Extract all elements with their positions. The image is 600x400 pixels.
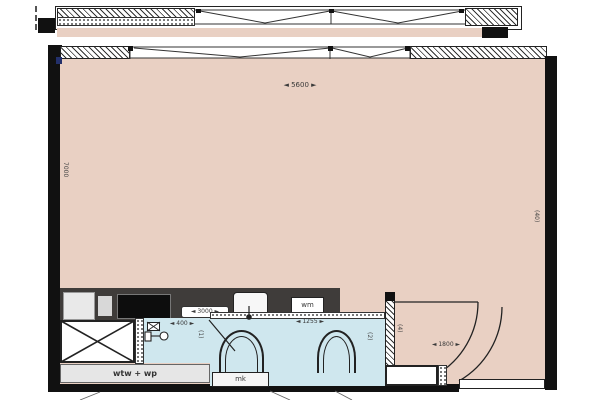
wall-left (48, 45, 60, 392)
cooktop (117, 294, 171, 319)
hall-area-tag: (4) (396, 324, 402, 333)
kitchen-panel (98, 296, 112, 316)
section-wall-block-left (38, 18, 55, 33)
room-area-tag: (40) (533, 210, 539, 222)
wall-top-hatch-left (60, 46, 130, 59)
bathroom-area-tag: (2) (366, 332, 372, 341)
hall-shaft-wall-stub (438, 365, 447, 386)
leader-lines (80, 391, 352, 400)
hall-shaft-box (385, 365, 438, 386)
wall-top-hatch-right (410, 46, 547, 59)
hall-dimension: ◄ 1800 ► (420, 341, 472, 349)
room-width-dimension: ◄ 5600 ► (270, 81, 330, 90)
toilet-fixture-inner (323, 336, 350, 373)
grid-dash-marks (35, 6, 37, 30)
wall-right (545, 56, 557, 390)
meter-box: mk (212, 372, 269, 387)
heat-unit-cabinet: wtw + wp (60, 364, 210, 383)
shaft-wall-strip (135, 318, 144, 364)
room-depth-dimension: 7000 (62, 162, 68, 177)
section-wall-block-right (482, 27, 508, 38)
kitchen-cabinet (63, 292, 95, 320)
column-marker (56, 57, 62, 64)
entrance-door-leaf (459, 379, 545, 389)
toilet-dimension: ◄ 400 ► (161, 320, 203, 328)
shaft-box (60, 320, 135, 363)
bathroom-dimension: ◄ 1255 ► (278, 318, 342, 326)
door-hinge-block (385, 292, 395, 301)
toilet-area-tag: (1) (197, 330, 203, 339)
shower-tray-inner (225, 336, 258, 373)
heat-unit-label: wtw + wp (113, 369, 157, 378)
facade-mullion-mid (328, 46, 333, 51)
switch-box-icon (147, 322, 160, 331)
floor-plan: ◄ 3000 ► wm wtw + wp ◄ 400 ► (1) ◄ 1255 … (0, 0, 600, 400)
section-wall-insulation-left (57, 17, 195, 26)
section-floor-band (57, 28, 507, 37)
section-wall-hatch-right (465, 8, 518, 26)
